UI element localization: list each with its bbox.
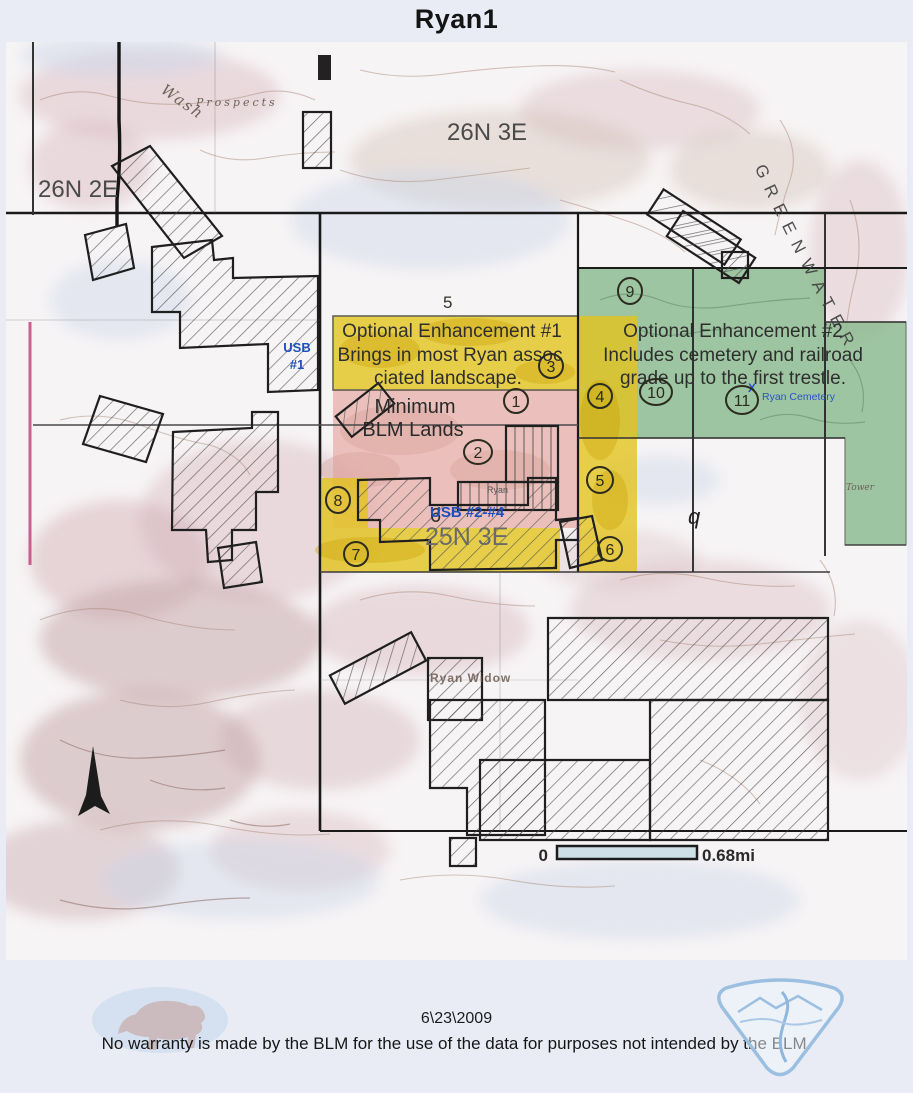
svg-text:5: 5: [596, 473, 605, 490]
cemetery-label: Ryan Cemetery: [762, 391, 836, 403]
svg-text:8: 8: [334, 493, 343, 510]
handwritten-section-q: q: [688, 504, 701, 529]
svg-text:11: 11: [734, 393, 751, 410]
claim-polygon: [450, 838, 476, 866]
minimum-blm-text: Minimum BLM Lands: [362, 396, 463, 441]
enh1-line3: ciated landscape.: [374, 368, 522, 389]
claim-polygon: [548, 618, 828, 700]
label-ryan: Ryan: [487, 485, 508, 495]
claim-polygon: [303, 112, 331, 168]
svg-text:6: 6: [606, 542, 615, 559]
usb2-4-label: USB #2-#4: [430, 504, 505, 521]
blm-logo: [710, 974, 852, 1086]
enh2-line1: Optional Enhancement #2: [623, 321, 843, 342]
svg-text:1: 1: [512, 394, 521, 411]
label-26n3e: 26N 3E: [447, 119, 527, 146]
handwritten-section-5: 5: [443, 293, 452, 312]
claim-polygon: [480, 760, 650, 840]
scale-distance: 0.68mi: [702, 846, 755, 865]
claim-polygon: [218, 542, 262, 588]
scanned-map-page: Ryan1: [0, 0, 913, 1093]
topographic-map: 26N 2E 26N 3E 25N 3E GREENWATER Wash Pro…: [6, 42, 907, 960]
svg-text:3: 3: [547, 359, 556, 376]
minimum-line2: BLM Lands: [362, 419, 463, 441]
svg-text:9: 9: [626, 284, 635, 301]
svg-text:4: 4: [596, 389, 605, 406]
enhancement2-text: Optional Enhancement #2 Includes cemeter…: [603, 321, 863, 389]
page-title: Ryan1: [0, 4, 913, 35]
svg-text:2: 2: [474, 445, 483, 462]
claim-polygon: [650, 700, 828, 840]
label-26n2e: 26N 2E: [38, 176, 118, 203]
usb1-line2: #1: [290, 357, 304, 372]
label-ryan-widow: Ryan Widow: [430, 671, 511, 685]
svg-text:10: 10: [647, 385, 665, 402]
minimum-line1: Minimum: [374, 396, 455, 418]
usb1-line1: USB: [283, 340, 310, 355]
label-25n3e: 25N 3E: [425, 523, 508, 551]
enh1-line1: Optional Enhancement #1: [342, 321, 562, 342]
enh1-line2: Brings in most Ryan assoc: [338, 345, 563, 366]
map-mark: [318, 55, 331, 80]
label-prospects: Prospects: [195, 96, 278, 109]
claim-polygon: [722, 252, 748, 278]
blm-triangle: [719, 980, 842, 1075]
enh2-line2: Includes cemetery and railroad: [603, 345, 863, 366]
claim-polygon: [506, 426, 558, 482]
svg-text:7: 7: [352, 547, 361, 564]
label-tower: Tower: [846, 483, 875, 493]
scale-zero: 0: [539, 846, 548, 865]
